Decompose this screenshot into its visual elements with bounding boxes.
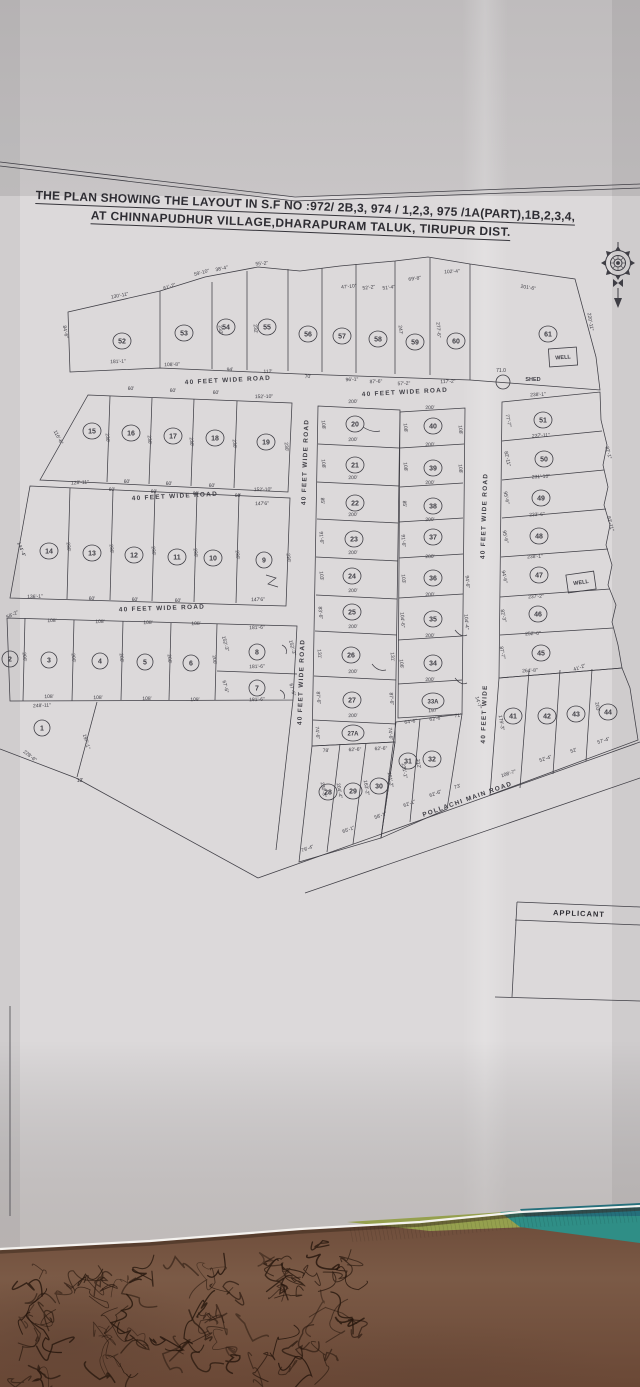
plot-number: 7 (255, 685, 259, 692)
plot-number: 13 (88, 550, 96, 557)
plot-number: 1 (40, 725, 44, 732)
dim-label: 200' (425, 442, 435, 448)
plot-number: 4 (98, 658, 102, 665)
dim-label: 200' (21, 652, 28, 662)
plot-number: 54 (222, 324, 230, 331)
plot-number: 59 (411, 339, 419, 346)
plot-number: 25 (348, 609, 356, 616)
dim-label: 200' (425, 517, 435, 523)
dim-label: 230' (192, 548, 199, 558)
dim-label: 117'-2" (440, 379, 456, 386)
dim-label: 230' (285, 553, 292, 563)
dim-label: 108' (142, 696, 151, 702)
dim-label: 200' (425, 677, 435, 683)
dim-label: 181'-1" (110, 359, 126, 366)
dim-label: 248'-11" (33, 703, 51, 710)
dim-label: 128'-11" (71, 480, 89, 487)
plot-number: 51 (539, 417, 547, 424)
dim-label: 60' (166, 481, 173, 487)
dim-label: 147'6" (251, 597, 265, 603)
dim-label: 200' (348, 399, 358, 405)
dim-label: 238'-1" (530, 392, 546, 399)
dim-label: 108'-8" (164, 362, 180, 369)
dim-label: 152'-10" (254, 487, 273, 493)
dim-label: 87'-6" (387, 692, 394, 705)
dim-label: 237'-2" (528, 594, 544, 601)
plot-number: 18 (211, 435, 219, 442)
dim-label: 85' (401, 500, 408, 507)
plot-number: 57 (338, 333, 346, 340)
dim-label: 131' (389, 652, 396, 662)
plot-number: 60 (452, 338, 460, 345)
plot-number: 35 (429, 616, 437, 623)
plot-number: 41 (509, 713, 517, 720)
dim-label: 264'-8" (522, 668, 538, 675)
dim-label: 87'-6" (369, 379, 382, 385)
dim-label: 108' (95, 619, 104, 625)
plot-number: 53 (180, 330, 188, 337)
plot-number: 14 (45, 548, 53, 555)
plot-number: 9 (262, 557, 266, 564)
dim-label: 62'-6" (348, 747, 361, 753)
dim-label: 60' (109, 487, 116, 493)
plot-number: 26 (347, 652, 355, 659)
dim-label: 108' (47, 618, 56, 624)
dim-label: 230' (283, 442, 290, 452)
dim-label: 94'-6" (463, 575, 470, 588)
dim-label: 131' (316, 649, 323, 659)
dim-label: 252'-6" (525, 631, 541, 638)
dim-label: 60' (209, 483, 216, 489)
dim-label: 60' (124, 479, 131, 485)
dim-label: 74'-6" (313, 726, 320, 739)
dim-label: 103' (318, 571, 325, 581)
dim-label: 231'-10" (532, 474, 551, 481)
dim-label: 200' (425, 405, 435, 411)
dim-label: 200' (348, 588, 358, 594)
dim-label: 108' (190, 697, 199, 703)
plot-number: 44 (604, 709, 612, 716)
plot-number: 27A (347, 731, 359, 737)
dim-label: 60' (213, 390, 220, 396)
dim-label: 108' (191, 621, 200, 627)
plot-number: 42 (543, 713, 551, 720)
dim-label: 91'-6" (399, 534, 406, 547)
dim-label: 247' (397, 325, 404, 335)
dim-label: 200' (425, 592, 435, 598)
plot-number: 43 (572, 711, 580, 718)
dim-label: 108' (93, 695, 102, 701)
dim-label: 200' (425, 554, 435, 560)
dim-label: 200' (348, 475, 358, 481)
dim-label: 152'-10" (255, 394, 274, 400)
dim-label: 108' (44, 694, 53, 700)
dim-label: 71' (454, 713, 461, 720)
plot-number: 56 (304, 331, 312, 338)
dim-label: 94' (227, 367, 234, 373)
plot-number: 12 (130, 552, 138, 559)
plot-number: 22 (351, 500, 359, 507)
dim-label: 200' (166, 654, 173, 664)
dim-label: 230' (234, 550, 241, 560)
plot-number: 50 (540, 456, 548, 463)
plot-number: 16 (127, 430, 135, 437)
dim-label: 108' (457, 425, 464, 435)
dim-label: 60' (128, 386, 135, 392)
dim-label: 200' (348, 437, 358, 443)
plot-number: 30 (375, 783, 383, 790)
dim-label: 200' (211, 655, 218, 665)
dim-label: 200' (425, 480, 435, 486)
plot-number: 55 (263, 324, 271, 331)
plot-number: 10 (209, 555, 217, 562)
plot-number: 37 (429, 534, 437, 541)
plot-number: 11 (173, 554, 181, 561)
plot-number: 5 (143, 659, 147, 666)
plot-number: 2 (8, 656, 12, 663)
spot-value: 71.0 (496, 368, 506, 374)
plot-number: 39 (429, 465, 437, 472)
dim-label: 13' (77, 778, 84, 784)
dim-label: 60' (175, 598, 182, 604)
plot-number: 58 (374, 336, 382, 343)
dim-label: 108' (320, 459, 327, 469)
dim-label: 60' (170, 388, 177, 394)
dim-label: 181'-6" (249, 625, 265, 632)
plot-number: 61 (544, 331, 552, 338)
dim-label: 233'-6" (529, 512, 545, 519)
dim-label: 83'-6" (316, 606, 323, 619)
plot-number: 8 (255, 649, 259, 656)
dim-label: 60' (89, 596, 96, 602)
dim-label: 200' (118, 653, 125, 663)
plot-number: 49 (537, 495, 545, 502)
dim-label: 200' (348, 669, 358, 675)
dim-label: 238'-1" (527, 554, 543, 561)
plot-number: 17 (169, 433, 177, 440)
dim-label: 181'-6" (249, 697, 265, 704)
plot-number: 20 (351, 421, 359, 428)
plot-number: 28 (324, 789, 332, 796)
dim-label: 60' (235, 493, 242, 499)
dim-label: 87'-6" (314, 691, 321, 704)
dim-label: 102'-4" (444, 269, 460, 276)
plot-number: 33A (427, 699, 439, 705)
plot-number: 24 (348, 573, 356, 580)
dim-label: 108' (320, 420, 327, 430)
dim-label: 74'-6" (386, 727, 393, 740)
plot-number: 36 (429, 575, 437, 582)
dim-label: 136'-1" (27, 594, 43, 601)
dim-label: 91'-6" (317, 531, 324, 544)
plot-number: 48 (535, 533, 543, 540)
dim-label: 85' (319, 497, 326, 504)
plot-number: 29 (349, 788, 357, 795)
dim-label: 200' (348, 550, 358, 556)
dim-label: 70' (305, 374, 312, 380)
dim-label: 230' (188, 437, 195, 447)
plot-number: 40 (429, 423, 437, 430)
dim-label: 103' (400, 574, 407, 584)
dim-label: 78' (323, 748, 330, 754)
dim-label: 230' (231, 439, 238, 449)
dim-label: 55'-2" (255, 260, 268, 267)
dim-label: 108' (457, 464, 464, 474)
dim-label: 62'-6" (374, 746, 387, 752)
dim-label: 230' (104, 433, 111, 443)
plot-number: 3 (47, 657, 51, 664)
dim-label: 106' (398, 659, 405, 669)
dim-label: 200' (348, 713, 358, 719)
plot-number: 19 (262, 439, 270, 446)
plot-number: 27 (348, 697, 356, 704)
plot-number: 52 (118, 338, 126, 345)
plot-number: 23 (350, 536, 358, 543)
dim-label: 200' (425, 633, 435, 639)
plot-number: 15 (88, 428, 96, 435)
dim-label: 181'-6" (249, 664, 265, 671)
dim-label: 108' (402, 423, 409, 433)
dim-label: 230' (150, 546, 157, 556)
plot-number: 46 (534, 611, 542, 618)
plot-number: 34 (429, 660, 437, 667)
dim-label: 96'-1" (345, 377, 358, 383)
plot-number: 6 (189, 660, 193, 667)
dim-label: 230' (146, 435, 153, 445)
plot-number: 21 (351, 462, 359, 469)
dim-label: 57'-2" (397, 381, 410, 387)
dim-label: 237'-11" (532, 433, 550, 440)
dim-label: 147'6" (255, 501, 269, 507)
dim-label: 200' (348, 624, 358, 630)
dim-label: 60' (132, 597, 139, 603)
dim-label: 232' (252, 324, 259, 334)
plot-number: 47 (535, 572, 543, 579)
dim-label: 230' (108, 544, 115, 554)
photo-of-layout-plan: 84'-6"130'-11"61'-2"59'-10"38'-4"55'-2"4… (0, 0, 640, 1387)
dim-label: 200' (70, 653, 77, 663)
well-label: WELL (555, 354, 572, 361)
dim-label: 108' (402, 462, 409, 472)
plot-number: 31 (404, 758, 412, 765)
plot-number: 32 (428, 756, 436, 763)
shed-label: SHED (525, 377, 540, 383)
dim-label: 108' (143, 620, 152, 626)
plot-number: 45 (537, 650, 545, 657)
plot-number: 38 (429, 503, 437, 510)
dim-label: 200' (348, 512, 358, 518)
dim-label: 230' (65, 542, 72, 552)
